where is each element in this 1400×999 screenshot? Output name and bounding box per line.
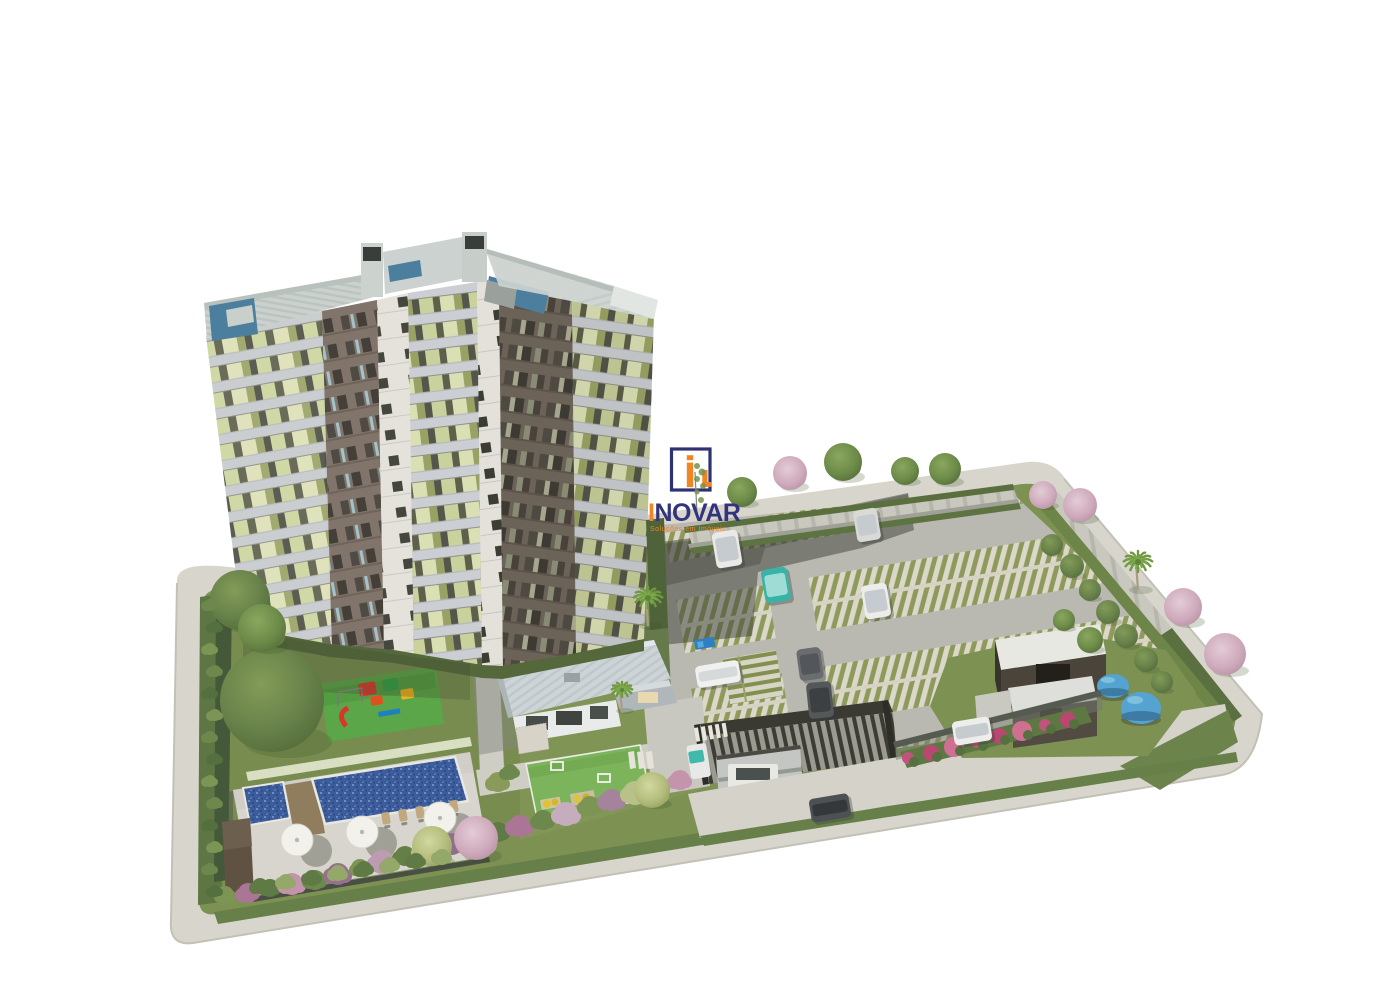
svg-text:INOVAR: INOVAR bbox=[648, 499, 741, 527]
svg-text:Soluções em Imóveis: Soluções em Imóveis bbox=[650, 526, 726, 533]
